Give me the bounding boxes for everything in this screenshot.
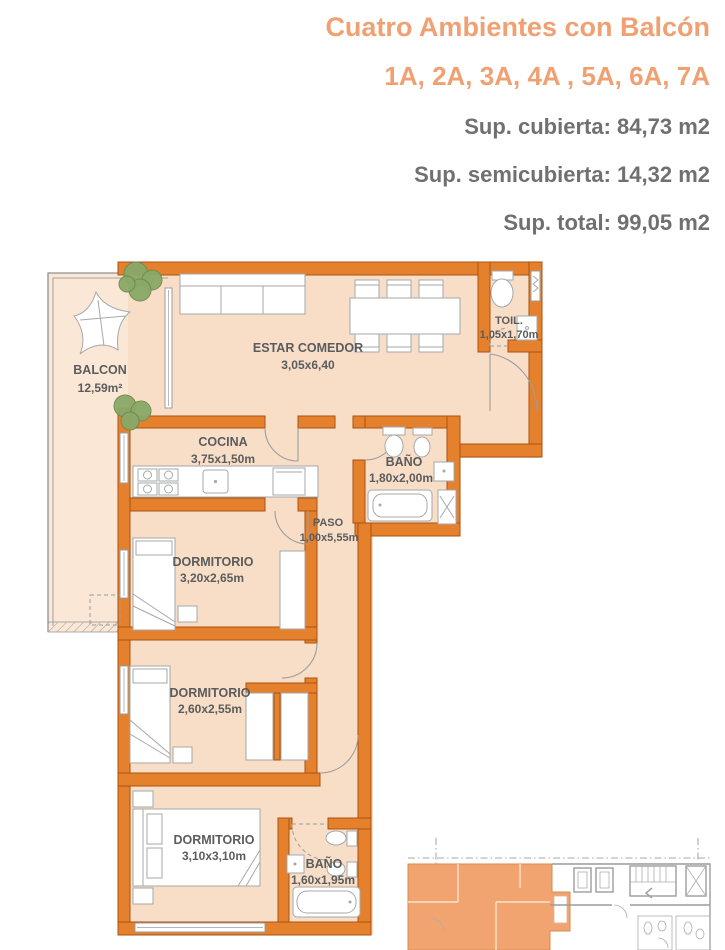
room-label-dorm1: DORMITORIO: [172, 555, 253, 569]
page-title: Cuatro Ambientes con Balcón: [325, 12, 710, 43]
stairs: [630, 866, 676, 898]
key-plan: [400, 838, 725, 950]
closet: [246, 693, 273, 760]
unit-numbers: 1A, 2A, 3A, 4A , 5A, 6A, 7A: [384, 61, 710, 92]
shaft: [686, 866, 706, 896]
room-label-paso: PASO: [313, 517, 344, 529]
bathrooms: [614, 905, 710, 950]
room-dims-toil: 1,05x1,70m: [480, 329, 539, 341]
apartment-listing-image: Cuatro Ambientes con Balcón 1A, 2A, 3A, …: [0, 0, 725, 950]
room-label-estar: ESTAR COMEDOR: [253, 341, 363, 355]
room-dims-estar: 3,05x6,40: [281, 358, 335, 372]
room-label-bano1: BAÑO: [386, 454, 423, 469]
room-dims-bano2: 1,60x1,95m: [291, 873, 355, 887]
sofa: [180, 274, 305, 314]
room-dims-bano1: 1,80x2,00m: [369, 471, 433, 485]
room-dims-dorm2: 2,60x2,55m: [178, 702, 242, 716]
room-label-toil: TOIL.: [495, 315, 523, 327]
dining-table: [350, 280, 460, 352]
room-dims-dorm3: 3,10x3,10m: [182, 849, 246, 863]
room-label-dorm2: DORMITORIO: [169, 686, 250, 700]
total-area-text: Sup. total: 99,05 m2: [503, 210, 710, 236]
room-label-dorm3: DORMITORIO: [173, 833, 254, 847]
room-label-cocina: COCINA: [198, 435, 247, 449]
closet: [281, 693, 308, 760]
room-label-bano2: BAÑO: [306, 856, 343, 871]
key-plan-svg: [400, 838, 725, 950]
room-dims-balcon: 12,59m²: [78, 381, 123, 395]
room-dims-cocina: 3,75x1,50m: [191, 452, 255, 466]
closet: [280, 551, 305, 629]
room-label-balcon: BALCON: [73, 363, 126, 377]
room-dims-paso: 1,00x5,55m: [300, 532, 359, 544]
room-dims-dorm1: 3,20x2,65m: [180, 571, 244, 585]
semicovered-area-text: Sup. semicubierta: 14,32 m2: [414, 162, 710, 188]
building-outline: [550, 864, 710, 950]
unit-highlight: [408, 864, 570, 950]
covered-area-text: Sup. cubierta: 84,73 m2: [464, 114, 710, 140]
kitchen-counter: [133, 466, 318, 497]
